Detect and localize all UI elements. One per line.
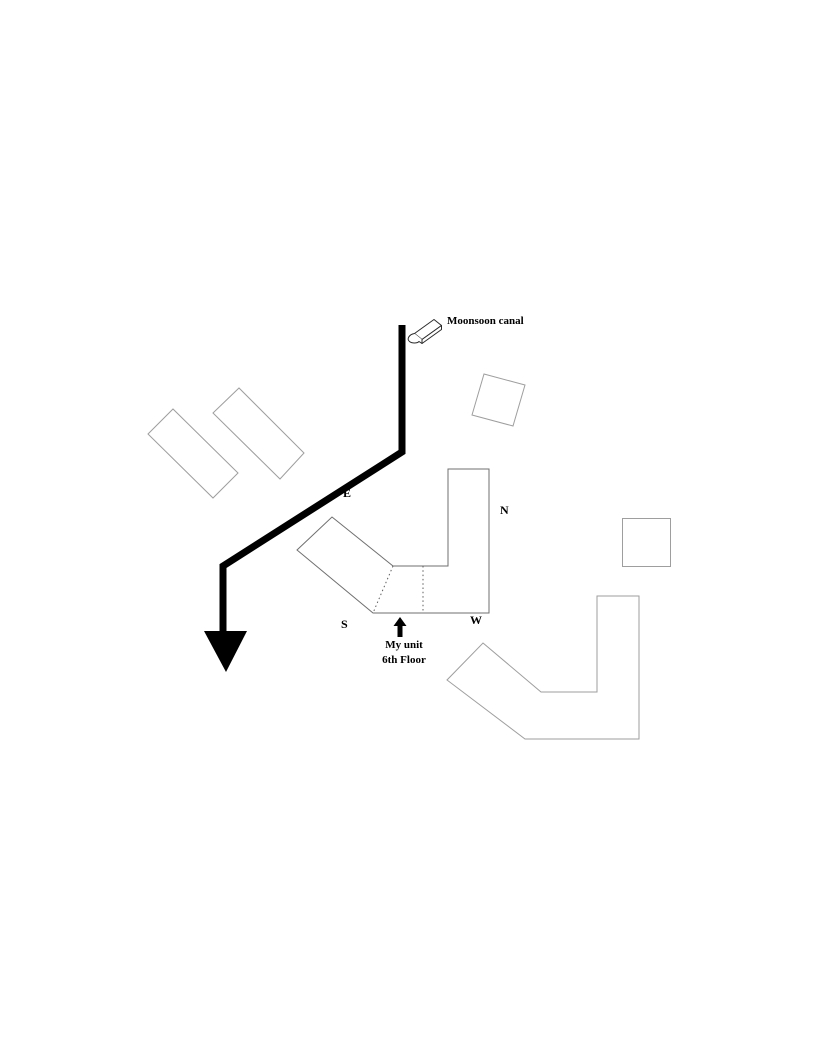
sketch-page: Moonsoon canal E N S W My unit 6th Floor xyxy=(0,0,816,1056)
canal-path xyxy=(223,325,402,632)
my-unit-label: My unit xyxy=(385,639,423,652)
buildings-layer xyxy=(148,374,671,739)
compass-west-label: W xyxy=(470,614,482,627)
canal-label: Moonsoon canal xyxy=(447,315,524,328)
compass-east-label: E xyxy=(343,487,351,500)
large-down-arrowhead-icon xyxy=(204,631,247,672)
my-unit-building xyxy=(297,469,489,613)
3d-arrow-down-left-icon xyxy=(408,320,441,344)
canal-layer xyxy=(204,325,402,672)
building-northwest-block-1 xyxy=(148,409,238,498)
compass-south-label: S xyxy=(341,618,348,631)
building-northwest-block-2 xyxy=(213,388,304,479)
my-unit-building-group xyxy=(297,469,489,613)
small-up-arrow-icon xyxy=(394,617,407,637)
compass-north-label: N xyxy=(500,504,509,517)
building-east-square xyxy=(623,519,671,567)
building-north-tilted-square xyxy=(472,374,525,426)
site-sketch-canvas xyxy=(0,0,816,1056)
unit-divider-line-1 xyxy=(373,566,393,613)
my-unit-floor-label: 6th Floor xyxy=(382,654,426,667)
